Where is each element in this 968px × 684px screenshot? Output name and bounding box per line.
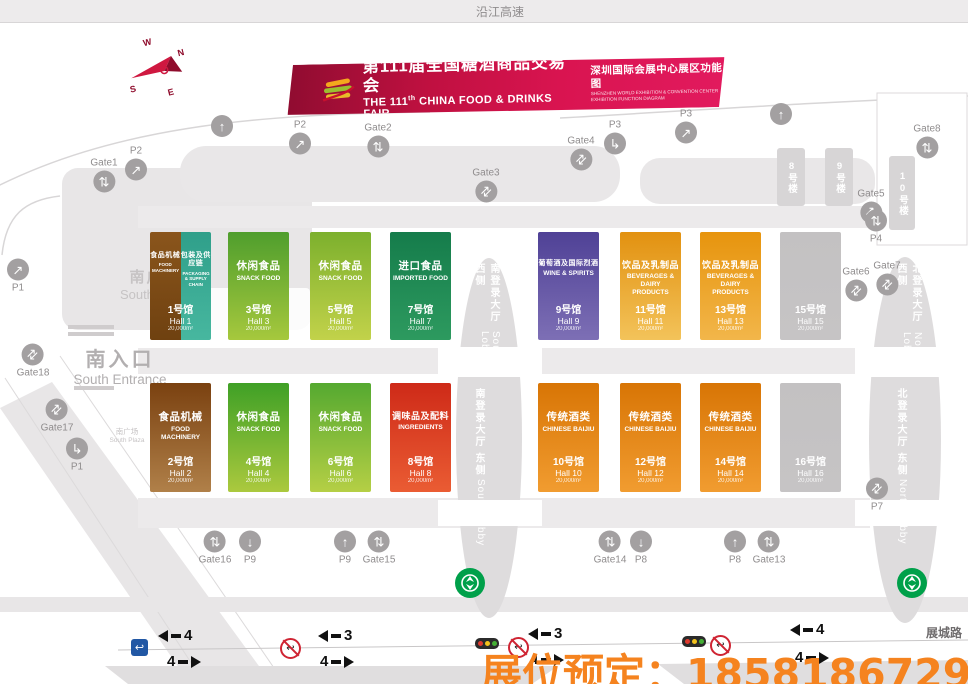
building-10号楼: 10号楼 xyxy=(889,156,915,230)
hall-number-en: Hall 12 xyxy=(620,468,681,478)
updown-arrow-icon: ⇅ xyxy=(204,531,226,553)
hall-area: 20,000m² xyxy=(700,326,761,332)
marker-Gate18: ⇅Gate18 xyxy=(17,344,50,381)
marker-P8: ↑P8 xyxy=(724,531,746,568)
hall-number-en: Hall 14 xyxy=(700,468,761,478)
hall-area: 20,000m² xyxy=(700,478,761,484)
hall-number-zh: 11号馆 xyxy=(620,301,681,316)
hall-number-zh: 12号馆 xyxy=(620,453,681,468)
marker-Gate14: ⇅Gate14 xyxy=(594,531,627,568)
marker-label: Gate3 xyxy=(472,168,499,179)
marker-P2: P2↗ xyxy=(289,118,311,155)
marker-Gate15: ⇅Gate15 xyxy=(363,531,396,568)
direction-marker: ↑ xyxy=(211,115,233,137)
hall-category-en: CHINESE BAIJIU xyxy=(620,426,681,434)
hall-category: 传统酒类CHINESE BAIJIU xyxy=(700,383,761,434)
hall-number-en: Hall 8 xyxy=(390,468,451,478)
lobby-zh: 北登录大厅 东侧 xyxy=(893,388,908,477)
marker-label: Gate14 xyxy=(594,555,627,566)
banner-subtitle-zh: 深圳国际会展中心展区功能图 xyxy=(590,62,725,90)
hall-area: 20,000m² xyxy=(780,478,841,484)
hall-name: 7号馆Hall 720,000m² xyxy=(390,301,451,332)
hall-name: 10号馆Hall 1020,000m² xyxy=(538,453,599,484)
marker-label: Gate5 xyxy=(857,189,884,200)
left-arrow-icon xyxy=(528,628,538,640)
building-8号楼: 8号楼 xyxy=(777,148,805,206)
hall-category: 饮品及乳制品BEVERAGES & DAIRY PRODUCTS xyxy=(700,232,761,297)
hall-name: 3号馆Hall 320,000m² xyxy=(228,301,289,332)
up-arrow-icon: ↑ xyxy=(211,115,233,137)
diagdouble-arrow-icon: ⇅ xyxy=(840,275,871,306)
marker-P3: P3↳ xyxy=(604,118,626,155)
lane-count-left: 4 xyxy=(158,627,192,644)
up-arrow-icon: ↑ xyxy=(724,531,746,553)
marker-label: P4 xyxy=(870,234,882,245)
diagdouble-arrow-icon: ⇅ xyxy=(41,394,72,425)
hall-name: 5号馆Hall 520,000m² xyxy=(310,301,371,332)
lane-number: 4 xyxy=(816,621,824,638)
metro-logo-icon xyxy=(897,568,927,598)
lane-count-left: 4 xyxy=(790,621,824,638)
hall-name: 14号馆Hall 1420,000m² xyxy=(700,453,761,484)
marker-label: Gate17 xyxy=(41,423,74,434)
marker-label: P8 xyxy=(635,555,647,566)
top-road-label: 沿江高速 xyxy=(440,3,560,20)
hall-name: 16号馆Hall 1620,000m² xyxy=(780,453,841,484)
marker-P4: ⇅P4 xyxy=(865,210,887,247)
diagdouble-arrow-icon: ⇅ xyxy=(470,176,501,207)
hall-7: 进口食品IMPORTED FOOD7号馆Hall 720,000m² xyxy=(390,232,451,340)
lobby-zh: 南登录大厅 西侧 xyxy=(471,263,501,329)
marker-P3: P3↗ xyxy=(675,107,697,144)
marker-label: Gate7 xyxy=(873,261,900,272)
marker-Gate4: Gate4⇅ xyxy=(567,134,594,171)
hall-category-zh: 休闲食品 xyxy=(228,258,289,273)
hall-3: 休闲食品SNACK FOOD3号馆Hall 320,000m² xyxy=(228,232,289,340)
hall-category-zh: 休闲食品 xyxy=(228,409,289,424)
hall-name: 8号馆Hall 820,000m² xyxy=(390,453,451,484)
updown-arrow-icon: ⇅ xyxy=(865,210,887,232)
hall-number-zh: 10号馆 xyxy=(538,453,599,468)
arrow-bar xyxy=(171,634,181,638)
hall-name: 13号馆Hall 1320,000m² xyxy=(700,301,761,332)
hall-category-zh: 包装及供应链 xyxy=(181,232,212,269)
compass-w: W xyxy=(142,36,153,48)
diagdouble-arrow-icon: ⇅ xyxy=(17,339,48,370)
bottom-road-label: 展城路 xyxy=(926,624,962,641)
hall-category-en: FOOD MACHINERY xyxy=(150,426,211,442)
marker-P8: ↓P8 xyxy=(630,531,652,568)
marker-label: P9 xyxy=(244,555,256,566)
hall-number-zh: 8号馆 xyxy=(390,453,451,468)
up-arrow-icon: ↑ xyxy=(770,103,792,125)
hall-category-zh: 食品机械 xyxy=(150,409,211,424)
hall-category-zh: 传统酒类 xyxy=(700,409,761,424)
updown-arrow-icon: ⇅ xyxy=(368,531,390,553)
marker-Gate7: Gate7⇅ xyxy=(873,259,900,296)
hall-category-zh: 进口食品 xyxy=(390,258,451,273)
updown-arrow-icon: ⇅ xyxy=(367,136,389,158)
up-arrow-icon: ↑ xyxy=(334,531,356,553)
hall-area: 20,000m² xyxy=(310,326,371,332)
hall-area: 20,000m² xyxy=(538,478,599,484)
hall-number-zh: 5号馆 xyxy=(310,301,371,316)
arrow-bar xyxy=(803,628,813,632)
lobby-en: South Lobby xyxy=(471,331,501,381)
hall-number-en: Hall 16 xyxy=(780,468,841,478)
marker-Gate6: Gate6⇅ xyxy=(842,265,869,302)
marker-Gate13: ⇅Gate13 xyxy=(753,531,786,568)
hall-name: 4号馆Hall 420,000m² xyxy=(228,453,289,484)
fair-banner: 第111届全国糖酒商品交易会 THE 111th CHINA FOOD & DR… xyxy=(286,55,725,117)
hall-number-en: Hall 4 xyxy=(228,468,289,478)
lobby-label: 北登录大厅 东侧North Lobby xyxy=(893,388,908,548)
marker-label: P2 xyxy=(130,146,142,157)
lobby-en: South Lobby xyxy=(471,479,486,546)
hall-category-en: WINE & SPIRITS xyxy=(538,270,599,278)
hall-category-zh: 调味品及配料 xyxy=(390,409,451,422)
diag-arrow-icon: ↗ xyxy=(289,133,311,155)
down-arrow-icon: ↓ xyxy=(239,531,261,553)
arrow-bar xyxy=(178,660,188,664)
hall-category-zh: 传统酒类 xyxy=(538,409,599,424)
hall-number-zh: 1号馆 xyxy=(150,301,211,316)
marker-label: P8 xyxy=(729,555,741,566)
hall-category-zh: 饮品及乳制品 xyxy=(700,258,761,271)
hall-category: 传统酒类CHINESE BAIJIU xyxy=(620,383,681,434)
marker-Gate17: ⇅Gate17 xyxy=(41,399,74,436)
marker-label: Gate2 xyxy=(364,123,391,134)
hall-category-en: FOOD MACHINERY xyxy=(150,262,181,273)
hall-number-zh: 2号馆 xyxy=(150,453,211,468)
hall-number-zh: 6号馆 xyxy=(310,453,371,468)
hall-number-zh: 16号馆 xyxy=(780,453,841,468)
hall-area: 20,000m² xyxy=(620,478,681,484)
hall-6: 休闲食品SNACK FOOD6号馆Hall 620,000m² xyxy=(310,383,371,492)
marker-label: Gate16 xyxy=(199,555,232,566)
marker-label: P1 xyxy=(71,462,83,473)
hall-area: 20,000m² xyxy=(310,478,371,484)
marker-P1: ↳P1 xyxy=(66,438,88,475)
marker-label: Gate15 xyxy=(363,555,396,566)
hall-category-zh: 休闲食品 xyxy=(310,409,371,424)
hall-category-zh: 传统酒类 xyxy=(620,409,681,424)
hall-area: 20,000m² xyxy=(228,326,289,332)
booking-label: 展位预定： xyxy=(481,650,686,684)
marker-Gate2: Gate2⇅ xyxy=(364,121,391,158)
hall-number-en: Hall 15 xyxy=(780,316,841,326)
hall-category: 休闲食品SNACK FOOD xyxy=(228,232,289,283)
hall-area: 20,000m² xyxy=(390,326,451,332)
lobby-label: 南登录大厅 东侧South Lobby xyxy=(471,388,486,548)
marker-Gate1: Gate1⇅ xyxy=(90,156,117,193)
lobby-en: North Lobby xyxy=(893,332,923,381)
hall-area: 20,000m² xyxy=(780,326,841,332)
lane-number: 4 xyxy=(320,653,328,670)
hall-category: 食品机械FOOD MACHINERY xyxy=(150,383,211,442)
direction-marker: ↑ xyxy=(770,103,792,125)
marker-P9: ↑P9 xyxy=(334,531,356,568)
lane-count-right: 4 xyxy=(167,653,201,670)
building-9号楼: 9号楼 xyxy=(825,148,853,206)
hall-10: 传统酒类CHINESE BAIJIU10号馆Hall 1020,000m² xyxy=(538,383,599,492)
hall-category-en: SNACK FOOD xyxy=(228,426,289,434)
hall-13: 饮品及乳制品BEVERAGES & DAIRY PRODUCTS13号馆Hall… xyxy=(700,232,761,340)
hall-name: 12号馆Hall 1220,000m² xyxy=(620,453,681,484)
right-arrow-icon xyxy=(191,656,201,668)
marker-P9: ↓P9 xyxy=(239,531,261,568)
hall-number-zh: 14号馆 xyxy=(700,453,761,468)
hall-9: 葡萄酒及国际烈酒WINE & SPIRITS9号馆Hall 920,000m² xyxy=(538,232,599,340)
marker-Gate8: Gate8⇅ xyxy=(913,122,940,159)
hall-category: 休闲食品SNACK FOOD xyxy=(310,232,371,283)
marker-label: Gate8 xyxy=(913,124,940,135)
hall-category-zh: 饮品及乳制品 xyxy=(620,258,681,271)
hall-category: 饮品及乳制品BEVERAGES & DAIRY PRODUCTS xyxy=(620,232,681,297)
hall-number-en: Hall 13 xyxy=(700,316,761,326)
hall-number-zh: 9号馆 xyxy=(538,301,599,316)
venue-map: 沿江高速 展城路 W N S E 第111届全国糖酒商品交易会 THE 111t… xyxy=(0,0,968,684)
diag-arrow-icon: ↗ xyxy=(675,122,697,144)
hall-category-en: PACKAGING & SUPPLY CHAIN xyxy=(181,271,212,288)
diagdouble-arrow-icon: ⇅ xyxy=(871,269,902,300)
hall-name: 2号馆Hall 220,000m² xyxy=(150,453,211,484)
hall-number-en: Hall 2 xyxy=(150,468,211,478)
booking-overlay: 展位预定：18581867296 xyxy=(481,640,968,684)
banner-subtitle: 深圳国际会展中心展区功能图 SHENZHEN WORLD EXHIBITION … xyxy=(590,62,725,102)
hall-category: 调味品及配料INGREDIENTS xyxy=(390,383,451,432)
marker-P1: ↗P1 xyxy=(7,259,29,296)
hall-number-en: Hall 11 xyxy=(620,316,681,326)
u-turn-sign-icon: ↩ xyxy=(131,639,148,656)
arrow-bar xyxy=(541,632,551,636)
corner-arrow-icon: ↳ xyxy=(604,133,626,155)
marker-label: P2 xyxy=(294,120,306,131)
updown-arrow-icon: ⇅ xyxy=(93,171,115,193)
hall-name: 6号馆Hall 620,000m² xyxy=(310,453,371,484)
lane-count-right: 4 xyxy=(320,653,354,670)
hall-category-en: SNACK FOOD xyxy=(310,426,371,434)
hall-number-en: Hall 1 xyxy=(150,316,211,326)
hall-number-en: Hall 10 xyxy=(538,468,599,478)
hall-16: 16号馆Hall 1620,000m² xyxy=(780,383,841,492)
lobby-en: North Lobby xyxy=(893,479,908,544)
hall-category-zh: 食品机械 xyxy=(150,232,181,260)
left-arrow-icon xyxy=(158,630,168,642)
lane-count-left: 3 xyxy=(318,627,352,644)
metro-logo-icon xyxy=(455,568,485,598)
hall-name: 1号馆Hall 120,000m² xyxy=(150,301,211,332)
updown-arrow-icon: ⇅ xyxy=(916,137,938,159)
hall-14: 传统酒类CHINESE BAIJIU14号馆Hall 1420,000m² xyxy=(700,383,761,492)
hall-number-en: Hall 9 xyxy=(538,316,599,326)
left-arrow-icon xyxy=(790,624,800,636)
hall-category: 进口食品IMPORTED FOOD xyxy=(390,232,451,283)
right-arrow-icon xyxy=(344,656,354,668)
hall-category-en: IMPORTED FOOD xyxy=(390,275,451,283)
diag-arrow-icon: ↗ xyxy=(125,159,147,181)
updown-arrow-icon: ⇅ xyxy=(599,531,621,553)
lane-number: 3 xyxy=(344,627,352,644)
hall-category-zh: 葡萄酒及国际烈酒 xyxy=(538,258,599,268)
hall-number-zh: 3号馆 xyxy=(228,301,289,316)
hall-category: 休闲食品SNACK FOOD xyxy=(228,383,289,434)
hall-number-zh: 7号馆 xyxy=(390,301,451,316)
lobby-zh: 南登录大厅 东侧 xyxy=(471,388,486,477)
hall-number-zh: 13号馆 xyxy=(700,301,761,316)
south-entrance-label: 南入口 South Entrance xyxy=(35,343,205,387)
hall-number-en: Hall 6 xyxy=(310,468,371,478)
updown-arrow-icon: ⇅ xyxy=(758,531,780,553)
hall-category-en: BEVERAGES & DAIRY PRODUCTS xyxy=(700,273,761,297)
left-arrow-icon xyxy=(318,630,328,642)
marker-P2: P2↗ xyxy=(125,144,147,181)
marker-label: P1 xyxy=(12,283,24,294)
marker-label: Gate6 xyxy=(842,267,869,278)
hall-area: 20,000m² xyxy=(538,326,599,332)
hall-number-zh: 15号馆 xyxy=(780,301,841,316)
fair-logo-icon xyxy=(321,74,356,105)
marker-label: P9 xyxy=(339,555,351,566)
hall-category-en: SNACK FOOD xyxy=(310,275,371,283)
marker-Gate3: Gate3⇅ xyxy=(472,166,499,203)
hall-11: 饮品及乳制品BEVERAGES & DAIRY PRODUCTS11号馆Hall… xyxy=(620,232,681,340)
lane-number: 4 xyxy=(167,653,175,670)
lobby-label: 南登录大厅 西侧South Lobby xyxy=(471,263,501,381)
hall-category: 葡萄酒及国际烈酒WINE & SPIRITS xyxy=(538,232,599,278)
hall-2: 食品机械FOOD MACHINERY2号馆Hall 220,000m² xyxy=(150,383,211,492)
marker-label: P7 xyxy=(871,502,883,513)
hall-category-en: CHINESE BAIJIU xyxy=(538,426,599,434)
hall-number-en: Hall 7 xyxy=(390,316,451,326)
south-entrance-zh: 南入口 xyxy=(35,343,205,372)
hall-category-zh: 休闲食品 xyxy=(310,258,371,273)
hall-name: 15号馆Hall 1520,000m² xyxy=(780,301,841,332)
hall-number-zh: 4号馆 xyxy=(228,453,289,468)
marker-label: P3 xyxy=(680,109,692,120)
diagdouble-arrow-icon: ⇅ xyxy=(565,144,596,175)
hall-category-en: BEVERAGES & DAIRY PRODUCTS xyxy=(620,273,681,297)
marker-label: Gate13 xyxy=(753,555,786,566)
hall-category-en: INGREDIENTS xyxy=(390,424,451,432)
hall-5: 休闲食品SNACK FOOD5号馆Hall 520,000m² xyxy=(310,232,371,340)
arrow-bar xyxy=(331,634,341,638)
hall-category: 传统酒类CHINESE BAIJIU xyxy=(538,383,599,434)
marker-Gate16: ⇅Gate16 xyxy=(199,531,232,568)
hall-1: 食品机械FOOD MACHINERY包装及供应链PACKAGING & SUPP… xyxy=(150,232,211,340)
diagdouble-arrow-icon: ⇅ xyxy=(861,473,892,504)
hall-category: 休闲食品SNACK FOOD xyxy=(310,383,371,434)
hall-4: 休闲食品SNACK FOOD4号馆Hall 420,000m² xyxy=(228,383,289,492)
lane-number: 4 xyxy=(184,627,192,644)
no-u-turn-sign-icon: ↩ xyxy=(280,638,301,659)
hall-number-en: Hall 5 xyxy=(310,316,371,326)
arrow-bar xyxy=(331,660,341,664)
marker-label: Gate18 xyxy=(17,368,50,379)
marker-label: P3 xyxy=(609,120,621,131)
marker-label: Gate4 xyxy=(567,136,594,147)
hall-category-en: CHINESE BAIJIU xyxy=(700,426,761,434)
hall-area: 20,000m² xyxy=(390,478,451,484)
hall-area: 20,000m² xyxy=(620,326,681,332)
diag-arrow-icon: ↗ xyxy=(7,259,29,281)
hall-category-en: SNACK FOOD xyxy=(228,275,289,283)
hall-8: 调味品及配料INGREDIENTS8号馆Hall 820,000m² xyxy=(390,383,451,492)
hall-name: 9号馆Hall 920,000m² xyxy=(538,301,599,332)
corner-arrow-icon: ↳ xyxy=(66,438,88,460)
marker-label: Gate1 xyxy=(90,158,117,169)
hall-area: 20,000m² xyxy=(150,478,211,484)
hall-15: 15号馆Hall 1520,000m² xyxy=(780,232,841,340)
hall-number-en: Hall 3 xyxy=(228,316,289,326)
hall-area: 20,000m² xyxy=(228,478,289,484)
marker-P7: ⇅P7 xyxy=(866,478,888,515)
booking-phone: 18581867296 xyxy=(686,650,968,684)
hall-name: 11号馆Hall 1120,000m² xyxy=(620,301,681,332)
down-arrow-icon: ↓ xyxy=(630,531,652,553)
hall-area: 20,000m² xyxy=(150,326,211,332)
hall-12: 传统酒类CHINESE BAIJIU12号馆Hall 1220,000m² xyxy=(620,383,681,492)
